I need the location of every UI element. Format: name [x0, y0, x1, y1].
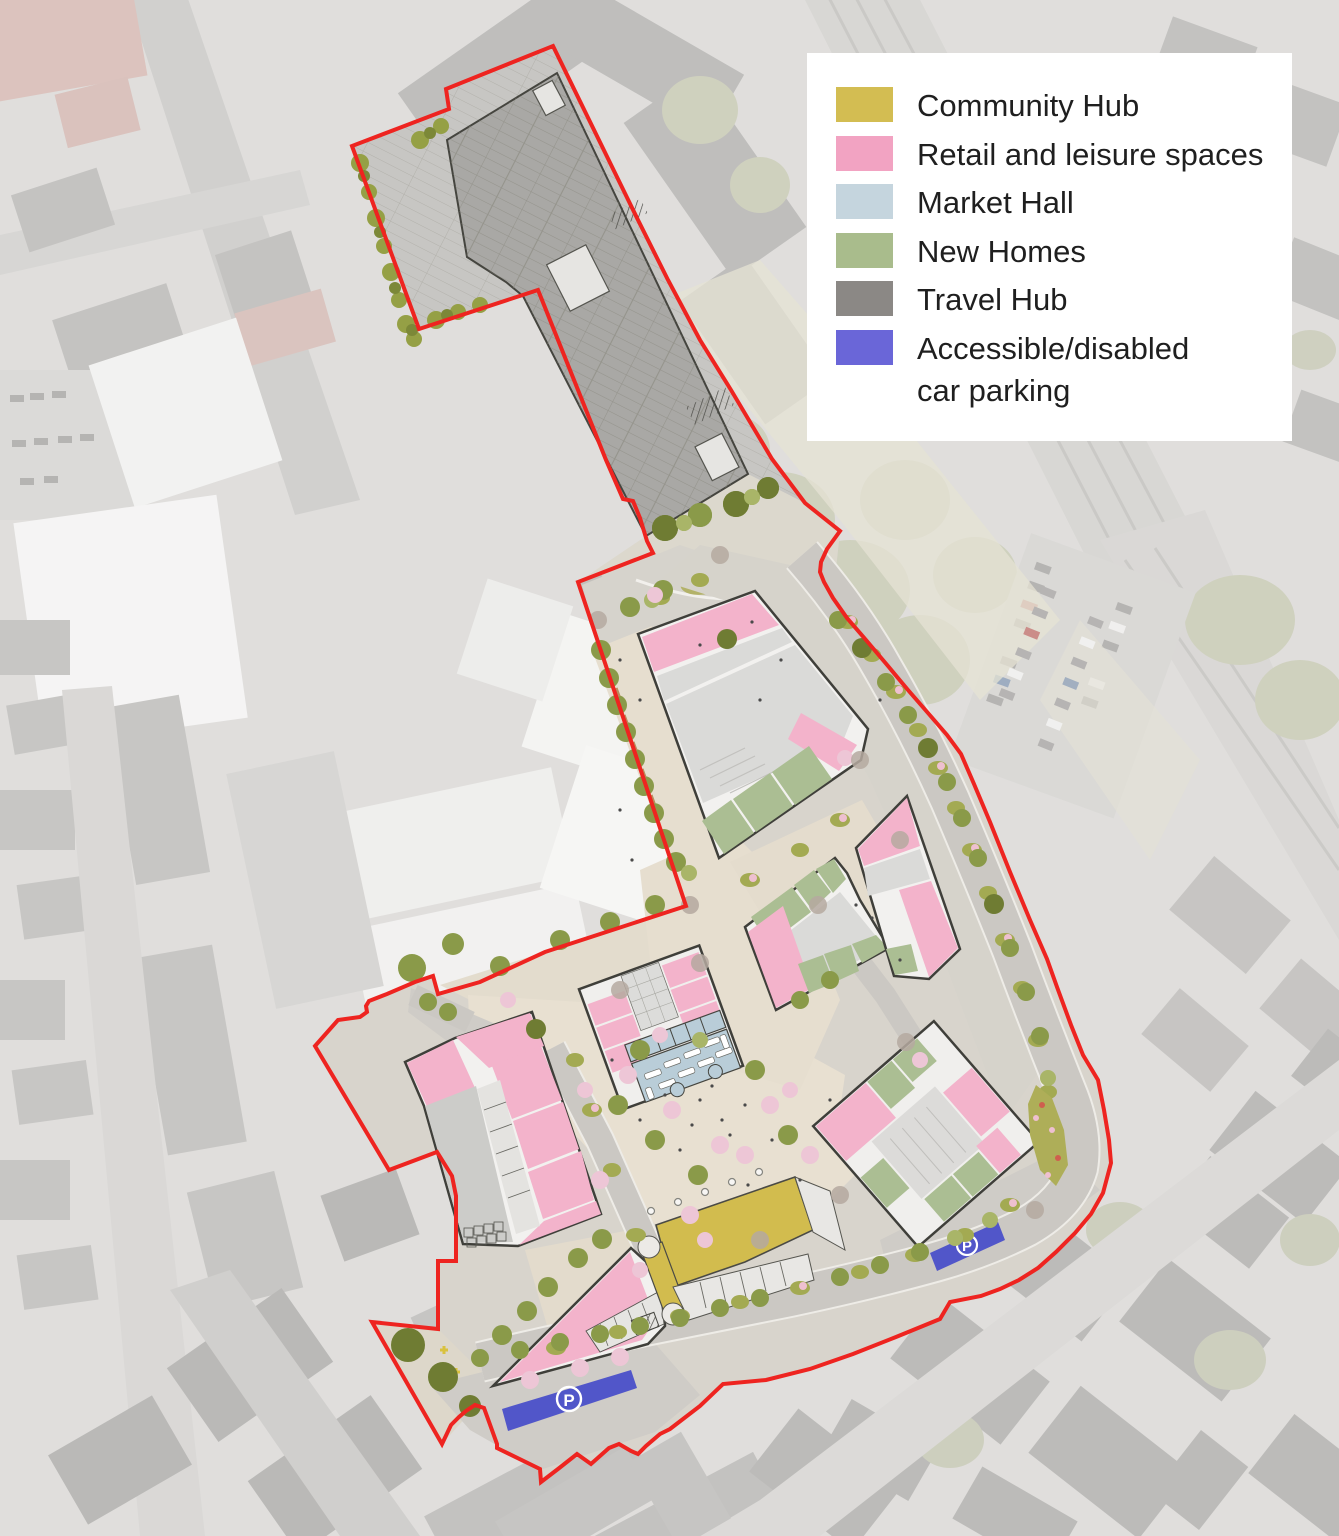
svg-text:New Homes: New Homes	[917, 234, 1086, 269]
svg-text:Accessible/disabled: Accessible/disabled	[917, 331, 1189, 366]
svg-text:Market Hall: Market Hall	[917, 185, 1074, 220]
svg-text:Travel Hub: Travel Hub	[917, 282, 1067, 317]
svg-text:P: P	[563, 1391, 574, 1410]
svg-text:Retail and leisure spaces: Retail and leisure spaces	[917, 137, 1263, 172]
svg-text:car parking: car parking	[917, 373, 1070, 408]
svg-text:Community Hub: Community Hub	[917, 88, 1139, 123]
